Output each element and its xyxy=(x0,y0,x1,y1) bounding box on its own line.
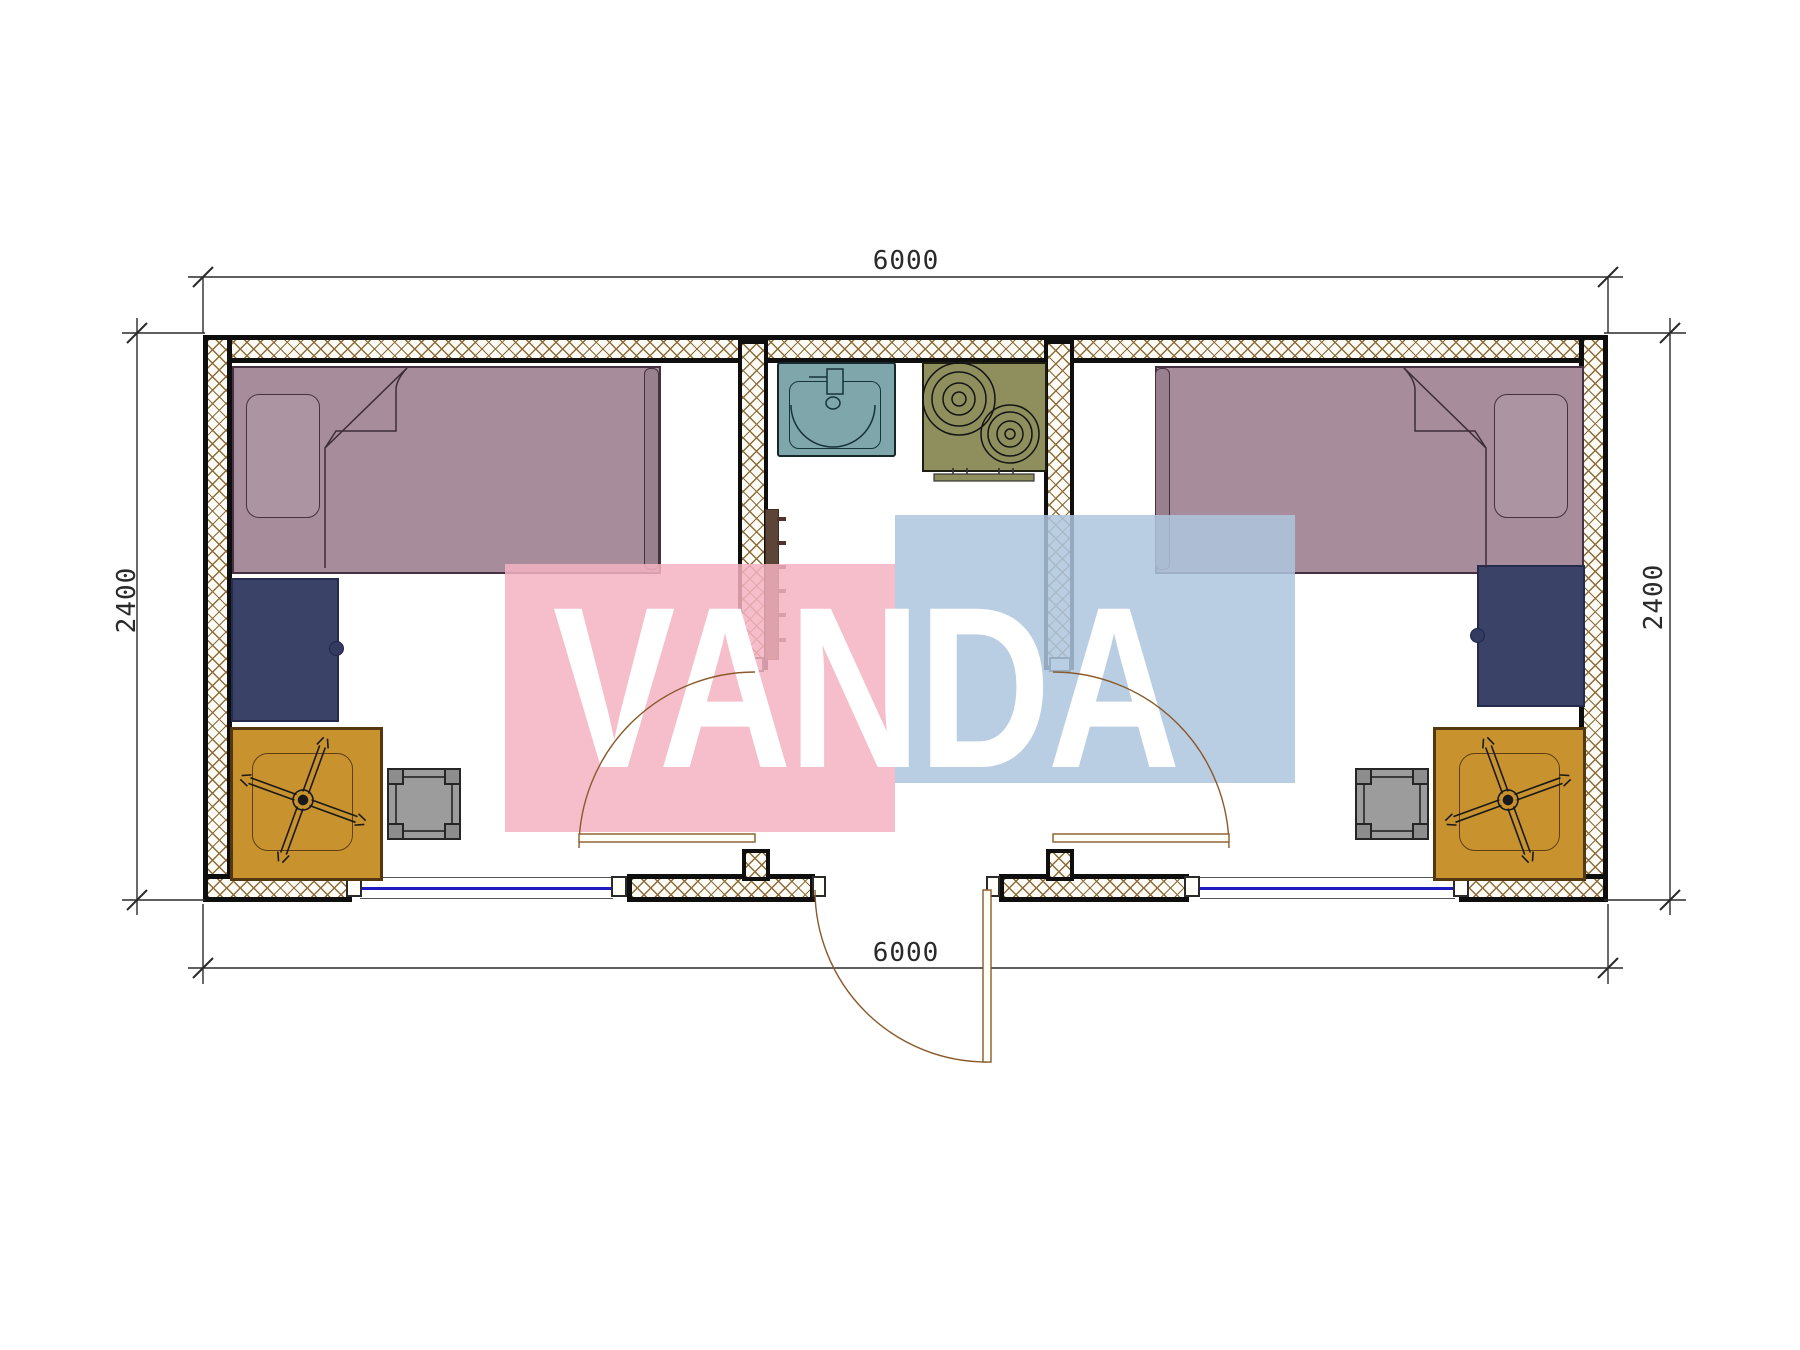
chair-left xyxy=(218,715,387,884)
stove-bracket xyxy=(934,468,1034,481)
blanket-fold-left xyxy=(325,368,407,568)
dimension-lines xyxy=(122,267,1686,984)
stove-burners xyxy=(923,363,1039,463)
door-leaves xyxy=(579,834,1229,1062)
sink-details xyxy=(791,369,875,447)
floor-plan-canvas: VANDA xyxy=(0,0,1800,1350)
chair-right xyxy=(1423,715,1592,884)
blanket-fold-right xyxy=(1404,368,1486,568)
door-swing-arcs xyxy=(579,672,1229,1062)
linework-overlay xyxy=(0,0,1800,1350)
